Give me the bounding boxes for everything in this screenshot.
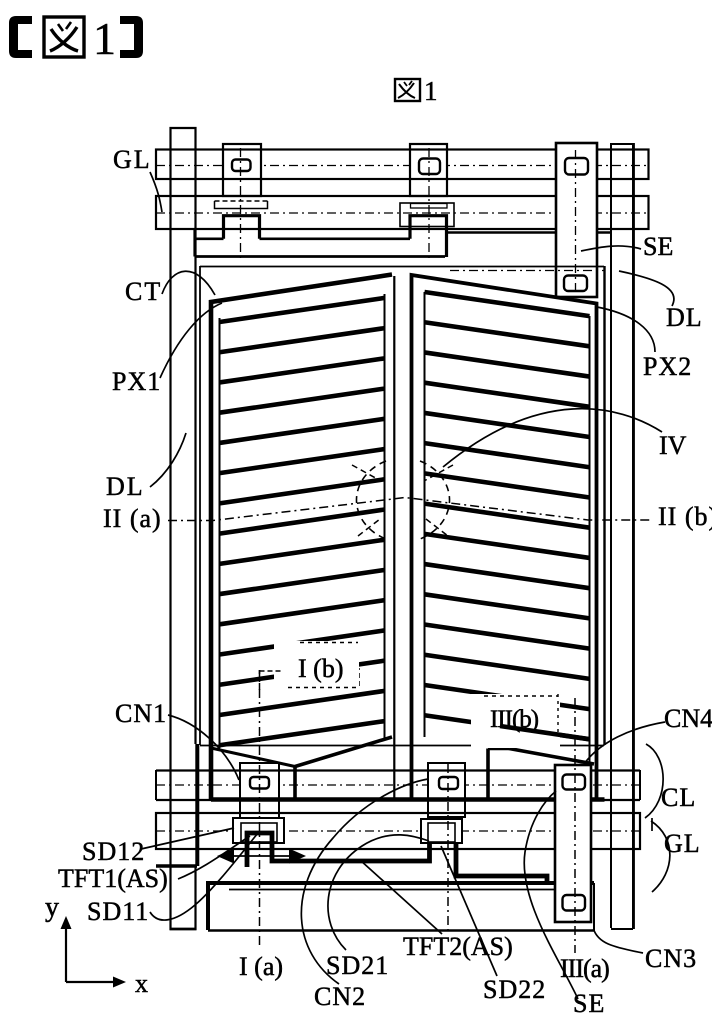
svg-text:PX1: PX1 [112, 367, 161, 396]
svg-text:y: y [45, 892, 59, 923]
svg-text:CN3: CN3 [645, 944, 697, 973]
svg-text:PX2: PX2 [643, 352, 692, 381]
svg-text:IV: IV [659, 431, 687, 460]
svg-text:SD21: SD21 [326, 951, 389, 980]
svg-text:CL: CL [661, 783, 696, 812]
svg-text:SD22: SD22 [483, 975, 546, 1004]
svg-text:DL: DL [106, 472, 145, 501]
svg-text:II (a): II (a) [103, 504, 162, 533]
svg-text:SD12: SD12 [82, 837, 145, 866]
svg-text:x: x [135, 969, 148, 998]
svg-text:TFT1(AS): TFT1(AS) [58, 864, 168, 893]
svg-text:CT: CT [125, 277, 162, 306]
svg-text:DL: DL [666, 303, 703, 332]
svg-text:CN1: CN1 [115, 699, 167, 728]
svg-text:CN4: CN4 [664, 704, 712, 733]
svg-text:SE: SE [643, 232, 673, 261]
svg-text:1: 1 [424, 76, 438, 106]
svg-text:I (a): I (a) [239, 952, 283, 981]
svg-text:III(b): III(b) [490, 706, 539, 733]
svg-text:TFT2(AS): TFT2(AS) [403, 932, 513, 961]
svg-text:SD11: SD11 [87, 897, 149, 926]
svg-text:1: 1 [93, 13, 116, 64]
svg-text:GL: GL [664, 829, 701, 858]
svg-text:GL: GL [113, 145, 152, 174]
svg-text:SE: SE [573, 989, 605, 1017]
svg-text:CN2: CN2 [314, 982, 366, 1011]
svg-text:III(a): III(a) [560, 954, 609, 983]
svg-text:II (b): II (b) [658, 502, 712, 531]
svg-text:I (b): I (b) [298, 654, 343, 683]
